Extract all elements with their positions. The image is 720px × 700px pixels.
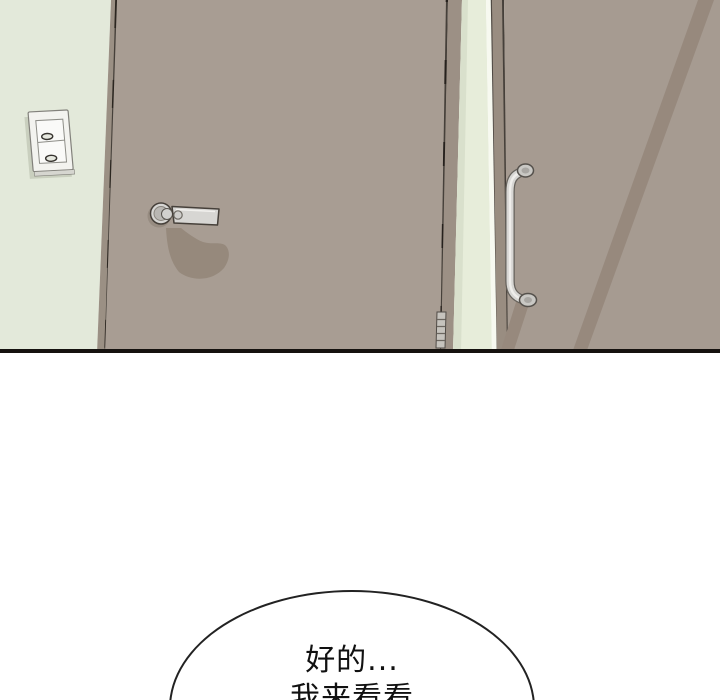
left-door [105, 0, 448, 353]
switch-indicator-top [41, 133, 53, 140]
grab-bar-mount-top-inner [522, 168, 530, 174]
door-hinge [436, 312, 446, 348]
speech-bubble-text: 好的... 我来看看 [232, 642, 472, 700]
speech-line-2: 我来看看 [232, 680, 472, 700]
handle-collar [162, 209, 173, 220]
speech-line-1: 好的... [232, 642, 472, 680]
comic-panel: 好的... 我来看看 [0, 0, 720, 700]
handle-lever-pivot [174, 211, 182, 219]
grab-bar-mount-bottom-inner [524, 297, 532, 303]
light-switch [24, 110, 75, 179]
switch-indicator-bottom [45, 155, 57, 162]
door-hinge-body [436, 312, 446, 348]
scene-artwork [0, 0, 720, 353]
